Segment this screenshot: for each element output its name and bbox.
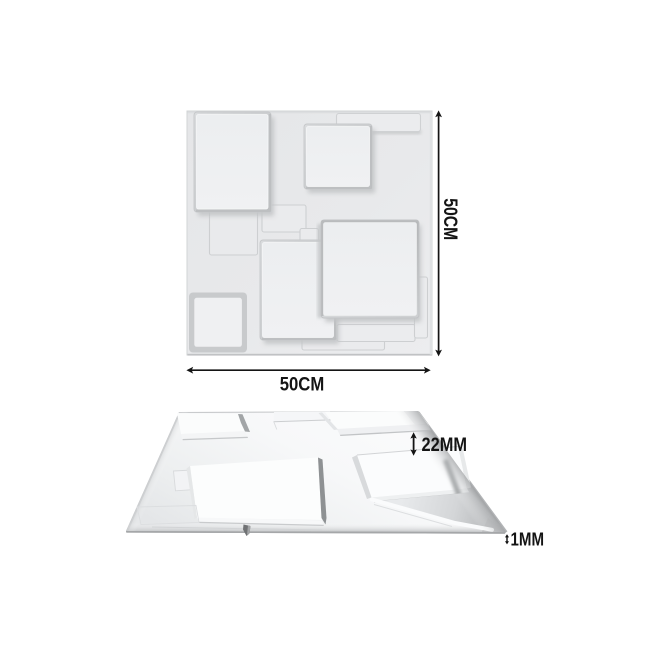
svg-text:50CM: 50CM: [439, 198, 460, 240]
svg-text:50CM: 50CM: [280, 375, 325, 396]
svg-text:22MM: 22MM: [422, 435, 468, 456]
svg-text:1MM: 1MM: [511, 530, 545, 550]
